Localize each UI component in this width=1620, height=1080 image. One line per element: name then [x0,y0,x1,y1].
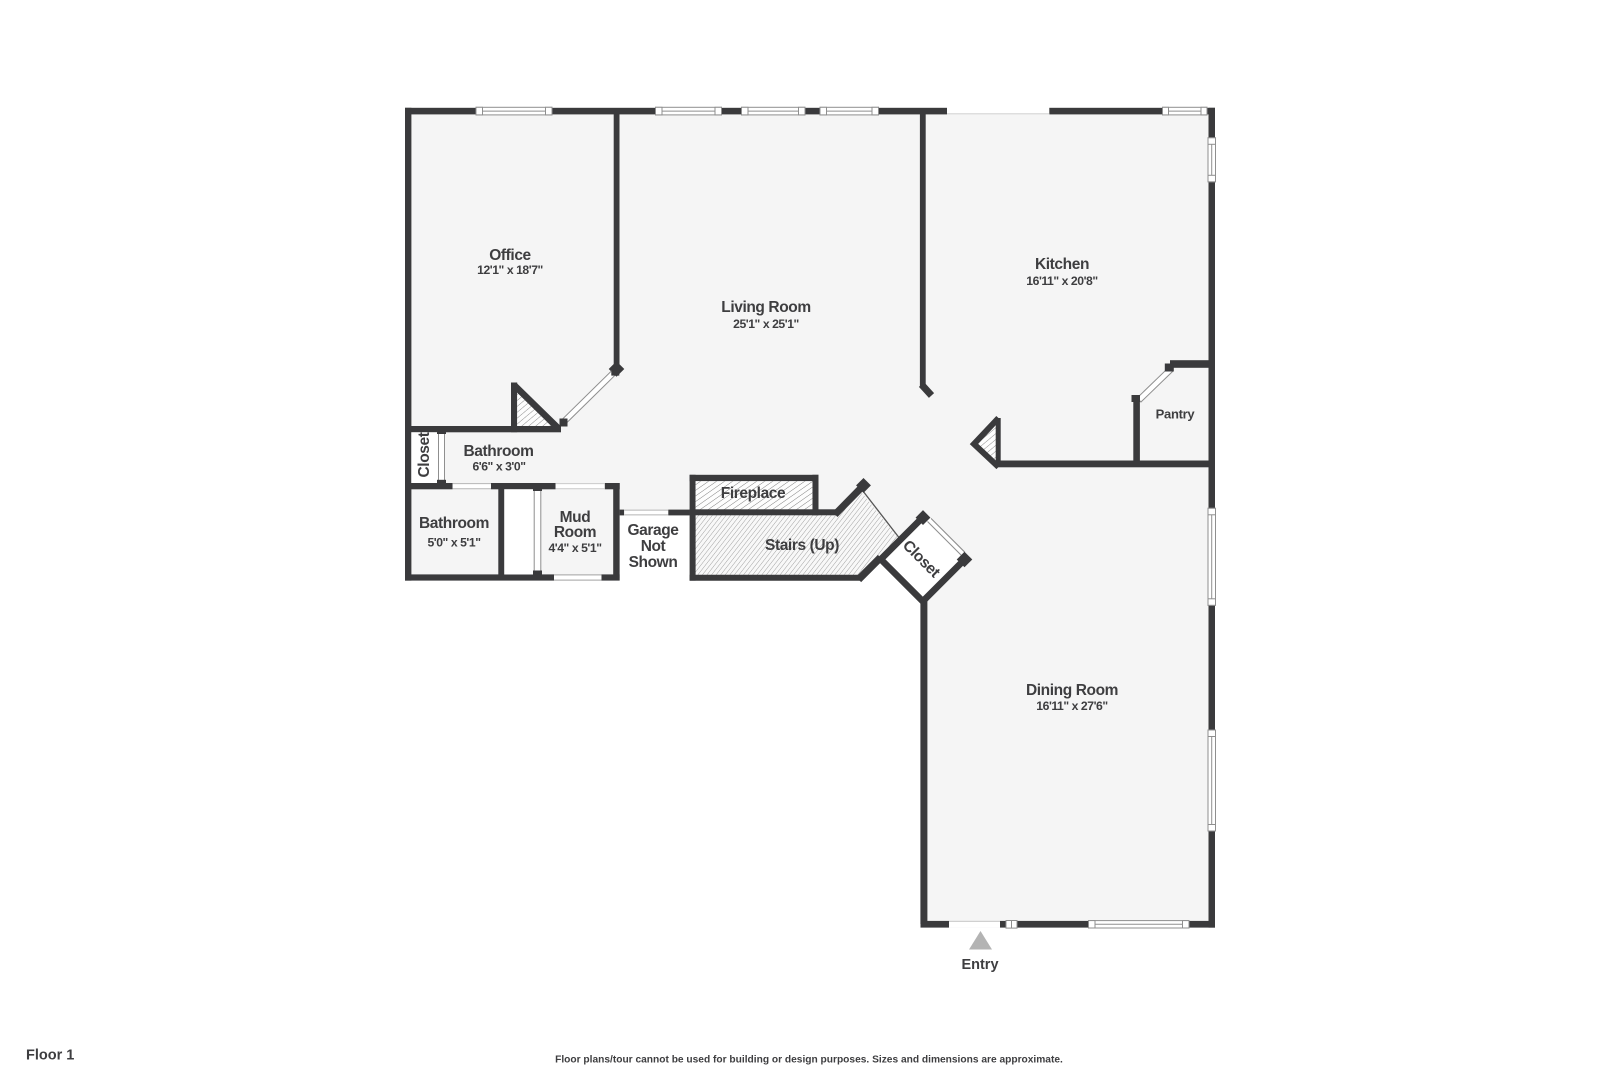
svg-text:Shown: Shown [629,554,678,571]
svg-text:Office: Office [489,247,531,264]
svg-text:16'11" x 20'8": 16'11" x 20'8" [1026,274,1097,288]
svg-text:Not: Not [641,538,666,555]
svg-text:12'1" x 18'7": 12'1" x 18'7" [477,263,543,277]
svg-text:25'1" x 25'1": 25'1" x 25'1" [733,317,799,331]
svg-text:4'4" x 5'1": 4'4" x 5'1" [548,541,601,555]
svg-text:Dining Room: Dining Room [1026,682,1118,699]
svg-text:Pantry: Pantry [1156,407,1196,422]
svg-text:6'6" x 3'0": 6'6" x 3'0" [472,460,525,474]
svg-text:Floor plans/tour cannot be use: Floor plans/tour cannot be used for buil… [555,1055,1063,1066]
svg-text:Fireplace: Fireplace [721,485,786,502]
svg-text:5'0" x 5'1": 5'0" x 5'1" [427,536,480,550]
svg-text:Stairs (Up): Stairs (Up) [765,537,839,554]
svg-text:Closet: Closet [416,432,433,477]
svg-text:Room: Room [554,524,596,541]
svg-text:Entry: Entry [961,957,998,973]
svg-text:Living Room: Living Room [721,299,810,316]
svg-text:16'11" x 27'6": 16'11" x 27'6" [1036,699,1107,713]
svg-text:Bathroom: Bathroom [464,443,534,460]
svg-text:Bathroom: Bathroom [419,515,489,532]
svg-text:Floor 1: Floor 1 [26,1048,74,1064]
svg-text:Kitchen: Kitchen [1035,256,1089,273]
svg-text:Garage: Garage [627,522,679,539]
